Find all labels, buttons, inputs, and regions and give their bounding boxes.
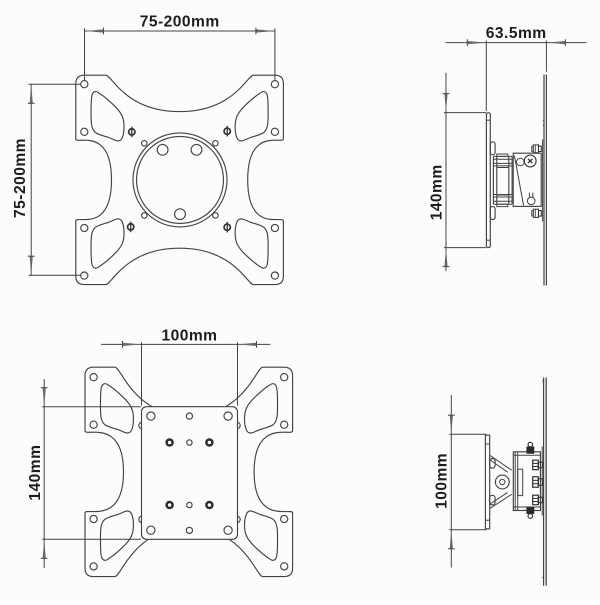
- svg-text:100mm: 100mm: [434, 453, 451, 509]
- svg-text:75-200mm: 75-200mm: [140, 13, 220, 30]
- svg-text:100mm: 100mm: [162, 327, 218, 344]
- svg-text:140mm: 140mm: [428, 164, 445, 220]
- svg-text:140mm: 140mm: [27, 445, 44, 501]
- svg-text:63.5mm: 63.5mm: [486, 25, 547, 42]
- svg-text:75-200mm: 75-200mm: [12, 138, 29, 218]
